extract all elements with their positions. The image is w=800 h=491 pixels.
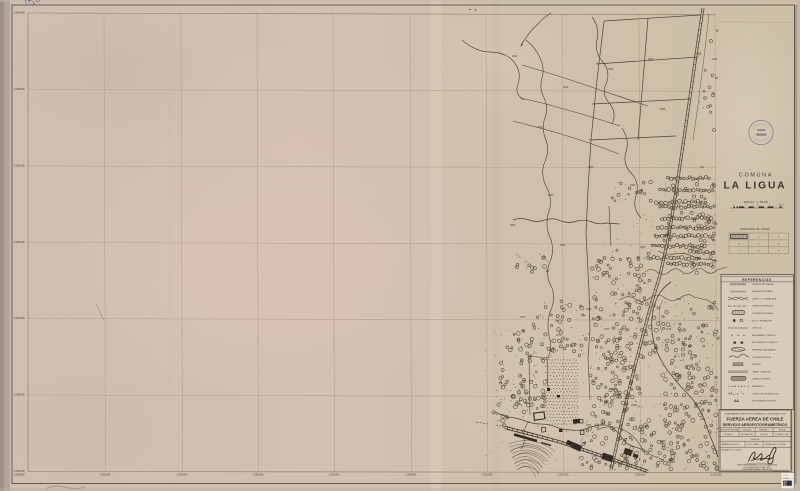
- svg-text:2.315.000: 2.315.000: [558, 473, 569, 476]
- svg-text:2.300.000: 2.300.000: [329, 473, 340, 476]
- svg-text:ALUMBRADO PUBLICO: ALUMBRADO PUBLICO: [752, 334, 776, 337]
- svg-text:VIGENCIA: VIGENCIA: [751, 438, 760, 441]
- svg-text:CAMINO DE RIPIO: CAMINO DE RIPIO: [752, 378, 771, 381]
- svg-text:ESCALA 1 : 50.000: ESCALA 1 : 50.000: [744, 200, 768, 204]
- svg-text:1: 1: [745, 204, 746, 206]
- svg-text:2.325.000: 2.325.000: [711, 473, 722, 476]
- svg-text:3690: 3690: [632, 404, 638, 407]
- svg-text:S.FDO.M.: S.FDO.M.: [760, 434, 768, 436]
- svg-text:PUENTE: PUENTE: [752, 364, 761, 366]
- svg-text:CAMARA: WILD RC-8: CAMARA: WILD RC-8: [721, 443, 739, 446]
- svg-text:3682: 3682: [610, 388, 616, 391]
- svg-text:SERVICIO AEROFOTOGRAMETRICO: SERVICIO AEROFOTOGRAMETRICO: [723, 423, 788, 427]
- svg-text:3692: 3692: [524, 402, 530, 405]
- svg-text:3: 3: [769, 204, 770, 206]
- svg-text:LIMITE DE PREDIOS: LIMITE DE PREDIOS: [752, 306, 774, 308]
- svg-text:2.305.000: 2.305.000: [406, 473, 417, 476]
- svg-text:ΔΔ: ΔΔ: [734, 399, 739, 403]
- svg-text:CURVAS DE NIVEL: CURVAS DE NIVEL: [752, 356, 772, 359]
- svg-text:DIBUJADO: DIBUJADO: [742, 428, 752, 431]
- svg-text:3668: 3668: [586, 308, 592, 311]
- svg-text:3674: 3674: [604, 328, 610, 331]
- svg-text:6.340.000: 6.340.000: [14, 473, 25, 476]
- svg-text:3694: 3694: [700, 418, 706, 421]
- svg-text:PUENTE DE CIMBRA: PUENTE DE CIMBRA: [752, 283, 774, 286]
- svg-text:REVISADO: REVISADO: [759, 428, 769, 431]
- svg-text:CERCOS: CERCOS: [752, 328, 762, 330]
- svg-text:CONSTRUCCIONES: CONSTRUCCIONES: [752, 313, 773, 315]
- svg-text:3662: 3662: [598, 260, 604, 263]
- svg-text:3658: 3658: [510, 224, 516, 227]
- svg-text:205: 205: [700, 166, 705, 169]
- svg-text:3698: 3698: [660, 440, 666, 443]
- svg-text:UBICACION DE HOJAS: UBICACION DE HOJAS: [740, 227, 770, 231]
- svg-text:FECHA VUELO OCT.1961: FECHA VUELO OCT.1961: [765, 443, 786, 446]
- svg-text:6.350.000: 6.350.000: [14, 317, 25, 320]
- svg-text:3660: 3660: [560, 244, 566, 247]
- svg-text:LA LIGUA: LA LIGUA: [724, 181, 787, 192]
- svg-text:REFERENCIAS: REFERENCIAS: [742, 278, 771, 282]
- svg-text:15.MARZO 1965: 15.MARZO 1965: [775, 433, 788, 436]
- svg-text:FOTOIDENTIFICACION: FOTOIDENTIFICACION: [752, 400, 776, 403]
- svg-text:3670: 3670: [520, 316, 526, 319]
- svg-text:COMUNA: COMUNA: [739, 173, 773, 179]
- svg-text:LUIS BRAVO BRAVO MAYOR (A): LUIS BRAVO BRAVO MAYOR (A): [742, 468, 773, 471]
- svg-text:SILO O ESTANQUE: SILO O ESTANQUE: [752, 319, 772, 322]
- svg-text:6.360.000: 6.360.000: [14, 164, 25, 167]
- svg-text:RED SERVICIO PUBLICO: RED SERVICIO PUBLICO: [752, 342, 778, 344]
- svg-text:6.365.000: 6.365.000: [14, 88, 25, 91]
- svg-text:3040: 3040: [512, 55, 518, 58]
- svg-text:3642: 3642: [563, 86, 569, 89]
- svg-text:3637: 3637: [538, 126, 544, 129]
- svg-text:2: 2: [757, 204, 758, 206]
- svg-text:3040: 3040: [712, 58, 718, 61]
- svg-text:3678: 3678: [690, 354, 696, 357]
- svg-text:3672: 3672: [556, 334, 562, 337]
- svg-text:2.295.000: 2.295.000: [253, 473, 264, 476]
- svg-text:3644: 3644: [608, 68, 614, 71]
- svg-text:ESCALA 1:50.000: ESCALA 1:50.000: [772, 470, 790, 473]
- svg-text:4 Km: 4 Km: [779, 204, 784, 206]
- svg-text:3643: 3643: [648, 58, 654, 61]
- svg-text:6.345.000: 6.345.000: [14, 393, 25, 396]
- svg-text:2.310.000: 2.310.000: [482, 473, 493, 476]
- svg-text:3684: 3684: [676, 298, 682, 301]
- svg-text:CERCO DE VEGETACION: CERCO DE VEGETACION: [752, 392, 779, 395]
- svg-text:25: 25: [514, 265, 518, 269]
- svg-text:25: 25: [524, 260, 528, 264]
- svg-text:3655: 3655: [548, 194, 554, 197]
- svg-text:HOJA No. 1: HOJA No. 1: [724, 433, 734, 436]
- svg-text:SENDEROS: SENDEROS: [752, 386, 765, 388]
- svg-text:3680: 3680: [540, 358, 546, 361]
- svg-text:3646: 3646: [660, 108, 666, 111]
- svg-text:D/504: D/504: [783, 478, 789, 480]
- svg-text:3650: 3650: [588, 166, 594, 169]
- svg-text:2.320.000: 2.320.000: [635, 473, 646, 476]
- svg-text:FUERZA AEREA DE CHILE: FUERZA AEREA DE CHILE: [726, 416, 783, 421]
- svg-text:APROB. PROVISORIA: APROB. PROVISORIA: [720, 428, 739, 431]
- svg-text:+ +: + +: [735, 392, 739, 395]
- svg-text:ESCALA FOTO: 1:30.000: ESCALA FOTO: 1:30.000: [721, 448, 741, 451]
- svg-text:6.340.000: 6.340.000: [14, 470, 25, 473]
- svg-text:0: 0: [733, 204, 734, 206]
- svg-text:3700: 3700: [698, 384, 704, 387]
- svg-text:25: 25: [517, 255, 521, 259]
- svg-text:3652: 3652: [630, 184, 636, 187]
- svg-text:REV.ENE.1965: REV.ENE.1965: [741, 434, 753, 436]
- svg-text:TERRENO INUNDABLE: TERRENO INUNDABLE: [752, 349, 776, 352]
- svg-text:FOCO 152MM: FOCO 152MM: [747, 444, 759, 446]
- svg-text:QUEB. O E. SENALADA: QUEB. O E. SENALADA: [752, 297, 777, 300]
- svg-text:FECHA: FECHA: [779, 428, 786, 431]
- svg-text:3664: 3664: [640, 246, 646, 249]
- svg-text:6.370.000: 6.370.000: [14, 11, 25, 14]
- svg-text:CANAL O ESTERO: CANAL O ESTERO: [752, 370, 771, 373]
- svg-text:2.285.000: 2.285.000: [100, 473, 111, 476]
- svg-text:6.355.000: 6.355.000: [14, 241, 25, 244]
- svg-text:LEVANTAMIENTO AEROFOTOGRAMETRI: LEVANTAMIENTO AEROFOTOGRAMETRICO EJECUTA…: [724, 412, 786, 415]
- svg-text:3676: 3676: [666, 328, 672, 331]
- svg-text:2.290.000: 2.290.000: [177, 473, 188, 476]
- svg-text:3696: 3696: [586, 424, 592, 427]
- svg-text:LADERA DE CERRO: LADERA DE CERRO: [752, 290, 773, 293]
